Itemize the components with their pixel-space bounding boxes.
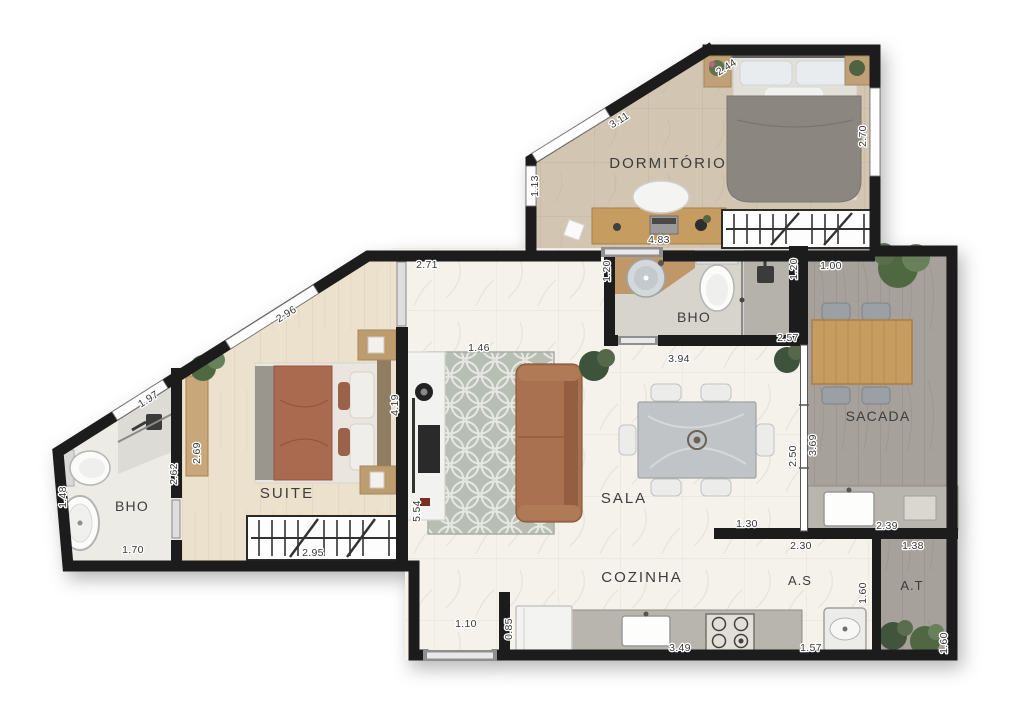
dim-hall-opening: 1.46 <box>468 342 490 354</box>
balcony-table <box>812 320 912 384</box>
room-label-technical: A.T <box>900 578 923 593</box>
dim-balcony-counter: 2.39 <box>876 520 898 532</box>
suite-bath-door-leaf <box>172 500 180 538</box>
balcony-chair <box>862 387 890 404</box>
dorm-nightstand-plant <box>849 60 865 76</box>
balcony-chair <box>822 303 850 320</box>
dorm-wardrobe <box>722 210 875 248</box>
top-bath-shower-head <box>757 266 774 283</box>
dim-bath-suite-left: 1.48 <box>57 486 69 508</box>
room-label-bathroom-suite: BHO <box>115 498 149 514</box>
dorm-blanket <box>727 96 861 202</box>
dim-suite-wardrobe: 2.95 <box>302 547 324 559</box>
dim-service-top: 2.30 <box>790 540 812 552</box>
dim-living-right: 2.50 <box>787 445 799 467</box>
entry-door-threshold <box>423 650 497 661</box>
dim-suite-bench: 2.69 <box>191 442 203 464</box>
dorm-right-window <box>870 88 880 176</box>
dim-hall-width: 2.71 <box>416 259 438 271</box>
room-label-dormitorio: DORMITÓRIO <box>609 155 727 172</box>
laundry-sink <box>824 608 866 652</box>
suite-bath-shower-head <box>146 414 162 430</box>
floor-plan-canvas: DORMITÓRIO BHO SACADA SUITE BHO SALA COZ… <box>0 0 1024 709</box>
dim-dorm-left: 1.13 <box>529 175 541 197</box>
floor-plan-body: DORMITÓRIO BHO SACADA SUITE BHO SALA COZ… <box>57 49 958 661</box>
dim-technical-right: 1.60 <box>938 632 950 654</box>
tv-screen <box>418 425 440 473</box>
dim-balcony-left: 3.69 <box>807 434 819 456</box>
dim-entry-width: 1.10 <box>455 618 477 630</box>
dorm-door-threshold <box>601 247 663 257</box>
room-label-bathroom-top: BHO <box>677 309 711 325</box>
dim-balcony-top: 1.00 <box>820 260 842 272</box>
dorm-pillow <box>740 61 792 85</box>
dorm-desk-mug <box>613 223 621 231</box>
kitchen-sink <box>622 616 670 646</box>
dim-technical-top: 1.38 <box>902 540 924 552</box>
dim-dorm-desk: 4.83 <box>648 234 670 246</box>
dim-bath-suite-wall: 2.62 <box>168 463 180 485</box>
dim-bath-top-left: 1.20 <box>601 260 613 282</box>
dim-suite-right: 4.19 <box>389 394 401 416</box>
dorm-pillow <box>796 61 848 85</box>
dim-living-kitchen-wall: 1.30 <box>736 518 758 530</box>
dorm-desk-chair <box>633 181 689 213</box>
dim-service-right: 1.60 <box>857 582 869 604</box>
room-label-suite: SUITE <box>260 485 314 502</box>
dim-bath-suite-bottom: 1.70 <box>122 544 144 556</box>
suite-wardrobe <box>247 516 403 560</box>
dim-entry-wall: 0.85 <box>503 618 515 640</box>
balcony-counter-item <box>904 496 936 520</box>
dim-service-sink: 1.57 <box>800 642 822 654</box>
suite-pillow-accent <box>338 428 350 456</box>
suite-door-leaf <box>397 262 406 326</box>
tv-panel <box>407 352 445 520</box>
room-label-balcony: SACADA <box>846 408 911 424</box>
dim-living-table: 3.94 <box>668 353 690 365</box>
balcony-chair <box>862 303 890 320</box>
suite-pillow <box>350 424 374 470</box>
dim-bath-top-right: 1.20 <box>788 258 800 280</box>
room-label-kitchen: COZINHA <box>601 569 683 586</box>
suite-pillow-accent <box>338 382 350 410</box>
dim-dorm-right: 2.70 <box>857 125 869 147</box>
floor-plan: DORMITÓRIO BHO SACADA SUITE BHO SALA COZ… <box>0 0 1024 709</box>
dim-living-tv: 5.54 <box>411 500 423 522</box>
balcony-sink <box>824 492 874 526</box>
sofa <box>516 364 582 522</box>
room-label-living: SALA <box>601 490 647 507</box>
room-label-service: A.S <box>788 573 812 588</box>
dim-bath-top-bottom: 2.57 <box>777 332 799 344</box>
dim-kitchen-counter: 3.49 <box>669 642 691 654</box>
suite-pillow <box>350 372 374 418</box>
top-bath-door-threshold <box>618 336 658 345</box>
stove <box>706 614 754 652</box>
balcony-chair <box>822 387 850 404</box>
suite-bed-duvet <box>274 366 332 480</box>
